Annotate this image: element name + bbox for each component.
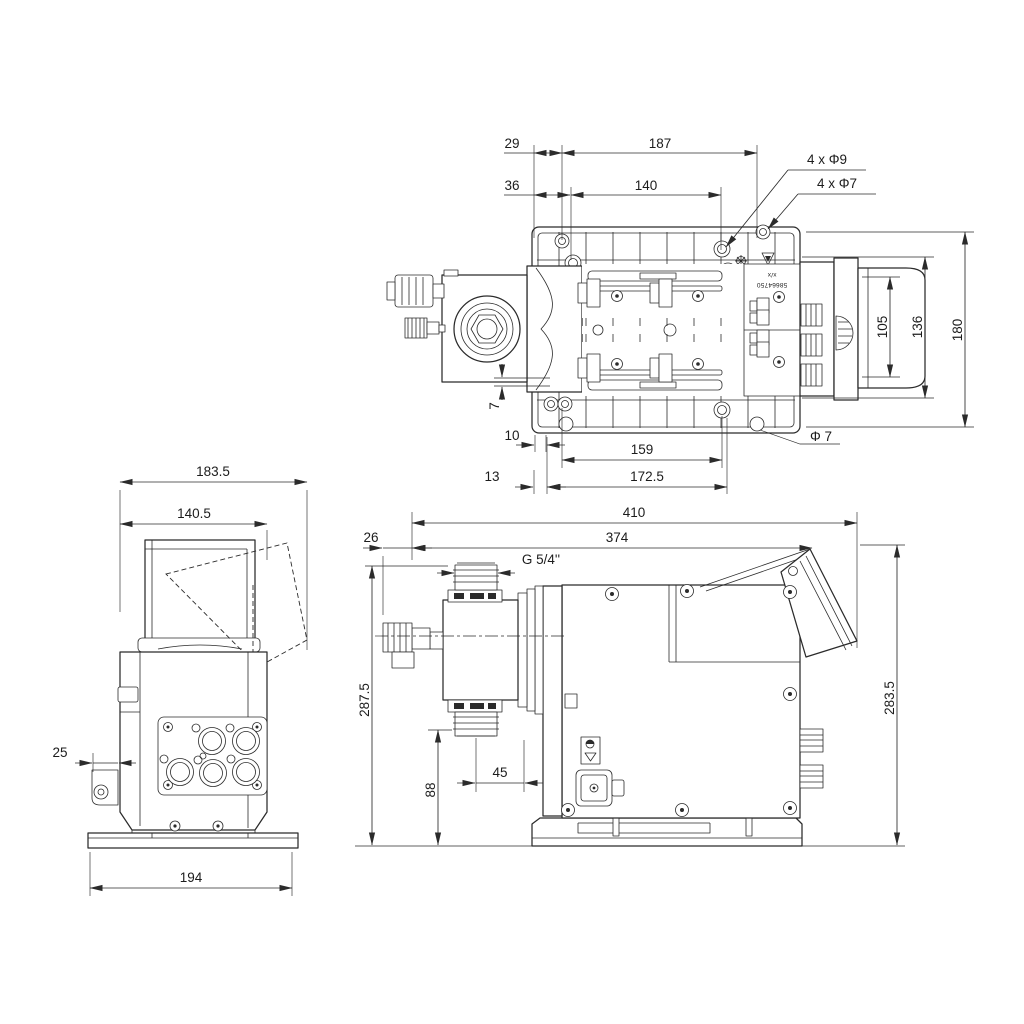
technical-drawing: x/x 58664750 <box>0 0 1024 1024</box>
dim-88: 88 <box>423 782 438 797</box>
pump-body-top <box>578 264 744 396</box>
wall-bracket <box>92 770 118 805</box>
motor-block-top <box>442 275 527 382</box>
label-4x-dia9: 4 x Φ9 <box>807 152 847 167</box>
top-view: x/x 58664750 <box>387 136 974 494</box>
dim-374: 374 <box>606 530 629 545</box>
lantern-front <box>543 586 562 816</box>
cable-gland-front-icon <box>383 623 443 668</box>
dim-159: 159 <box>631 442 654 457</box>
side-view: 183.5 140.5 25 194 <box>52 464 307 896</box>
dim-10: 10 <box>504 428 519 443</box>
dim-183-5: 183.5 <box>196 464 230 479</box>
dim-45: 45 <box>492 765 507 780</box>
clamp-detail <box>565 694 577 708</box>
label-thread-g54: G 5/4'' <box>522 552 560 567</box>
type-plate-variant-label: x/x <box>767 271 776 278</box>
latch-side <box>118 687 138 702</box>
dim-29: 29 <box>504 136 519 151</box>
discharge-connector <box>448 563 502 602</box>
dosing-head-front <box>443 600 518 700</box>
dim-25: 25 <box>52 745 67 760</box>
label-dia7: Φ 7 <box>810 429 832 444</box>
cable-glands-right-icon <box>800 729 823 788</box>
cable-gland-top-icon <box>387 275 444 307</box>
dim-410: 410 <box>623 505 646 520</box>
knurled-knob-top <box>405 318 445 338</box>
base-plate-front <box>532 818 802 846</box>
dim-7: 7 <box>487 402 502 410</box>
dim-287-5: 287.5 <box>357 683 372 717</box>
dim-283-5: 283.5 <box>882 681 897 715</box>
label-4x-dia7: 4 x Φ7 <box>817 176 857 191</box>
dim-140-5: 140.5 <box>177 506 211 521</box>
dim-105: 105 <box>875 316 890 339</box>
dim-187: 187 <box>649 136 672 151</box>
type-plate: x/x 58664750 <box>744 264 800 396</box>
control-unit-top <box>800 258 925 400</box>
type-plate-part-number: 58664750 <box>757 281 788 288</box>
connector-plate <box>158 717 267 795</box>
dim-36: 36 <box>504 178 519 193</box>
front-view: 26 410 374 G 5/4'' 287.5 88 45 283.5 <box>355 505 905 846</box>
dim-13: 13 <box>484 469 499 484</box>
suction-connector <box>448 700 502 736</box>
drawing-page: x/x 58664750 <box>0 0 1024 1024</box>
dim-140: 140 <box>635 178 658 193</box>
dim-26: 26 <box>363 530 378 545</box>
cable-glands-top-icon <box>801 304 822 386</box>
warning-label <box>581 737 600 764</box>
dim-172-5: 172.5 <box>630 469 664 484</box>
dim-136: 136 <box>910 316 925 339</box>
dim-180: 180 <box>950 319 965 342</box>
dim-194: 194 <box>180 870 203 885</box>
pump-neck-top <box>527 266 582 392</box>
base-plate-side <box>88 830 298 848</box>
